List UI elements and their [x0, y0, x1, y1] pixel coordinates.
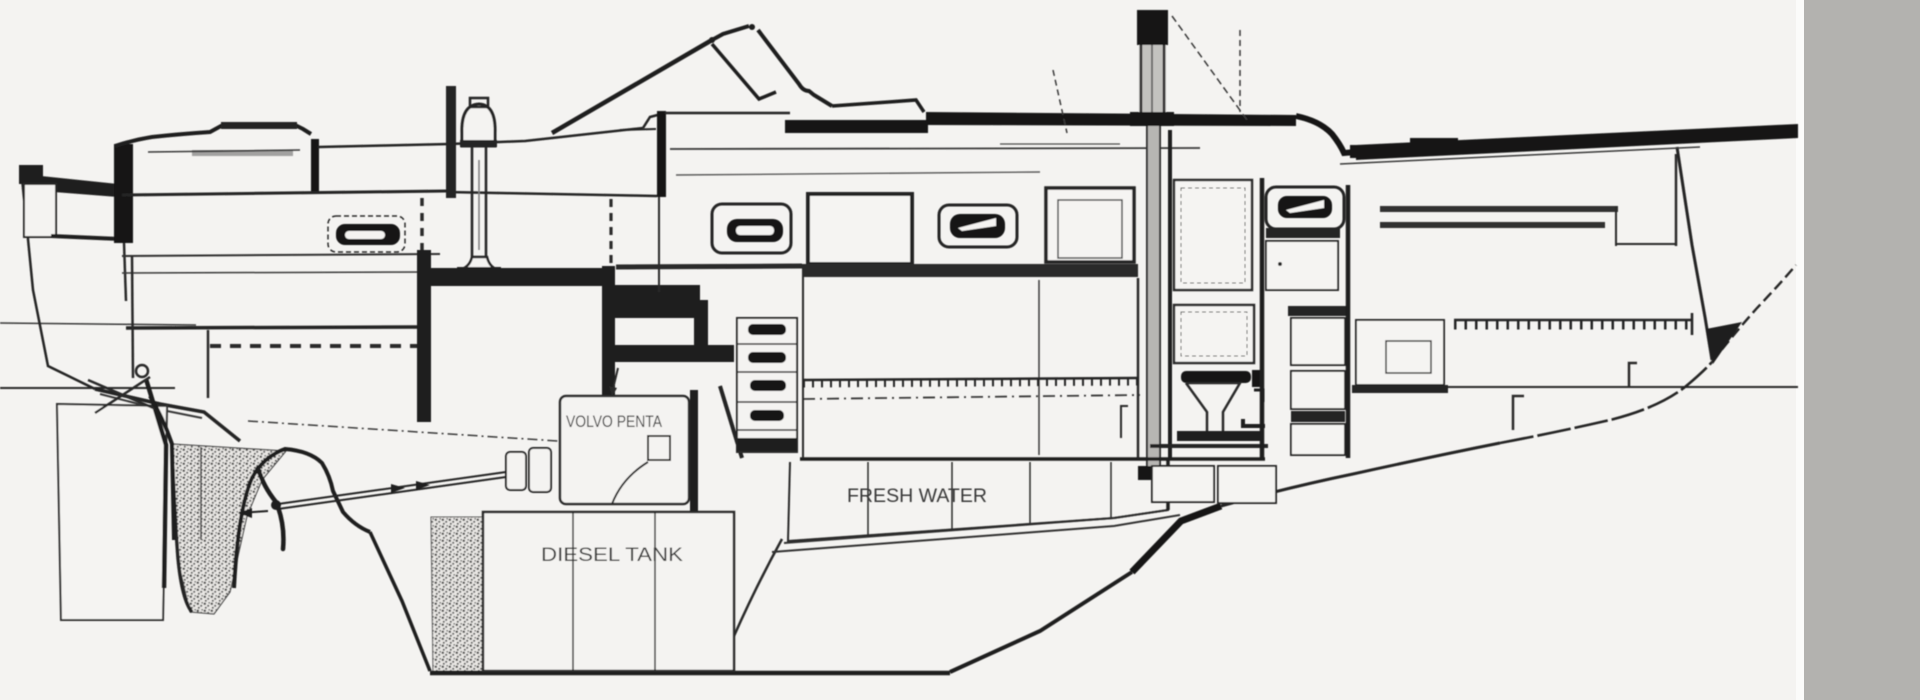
svg-text:VOLVO PENTA: VOLVO PENTA	[566, 412, 663, 431]
svg-text:FRESH WATER: FRESH WATER	[847, 486, 987, 507]
svg-text:DIESEL TANK: DIESEL TANK	[541, 545, 683, 566]
